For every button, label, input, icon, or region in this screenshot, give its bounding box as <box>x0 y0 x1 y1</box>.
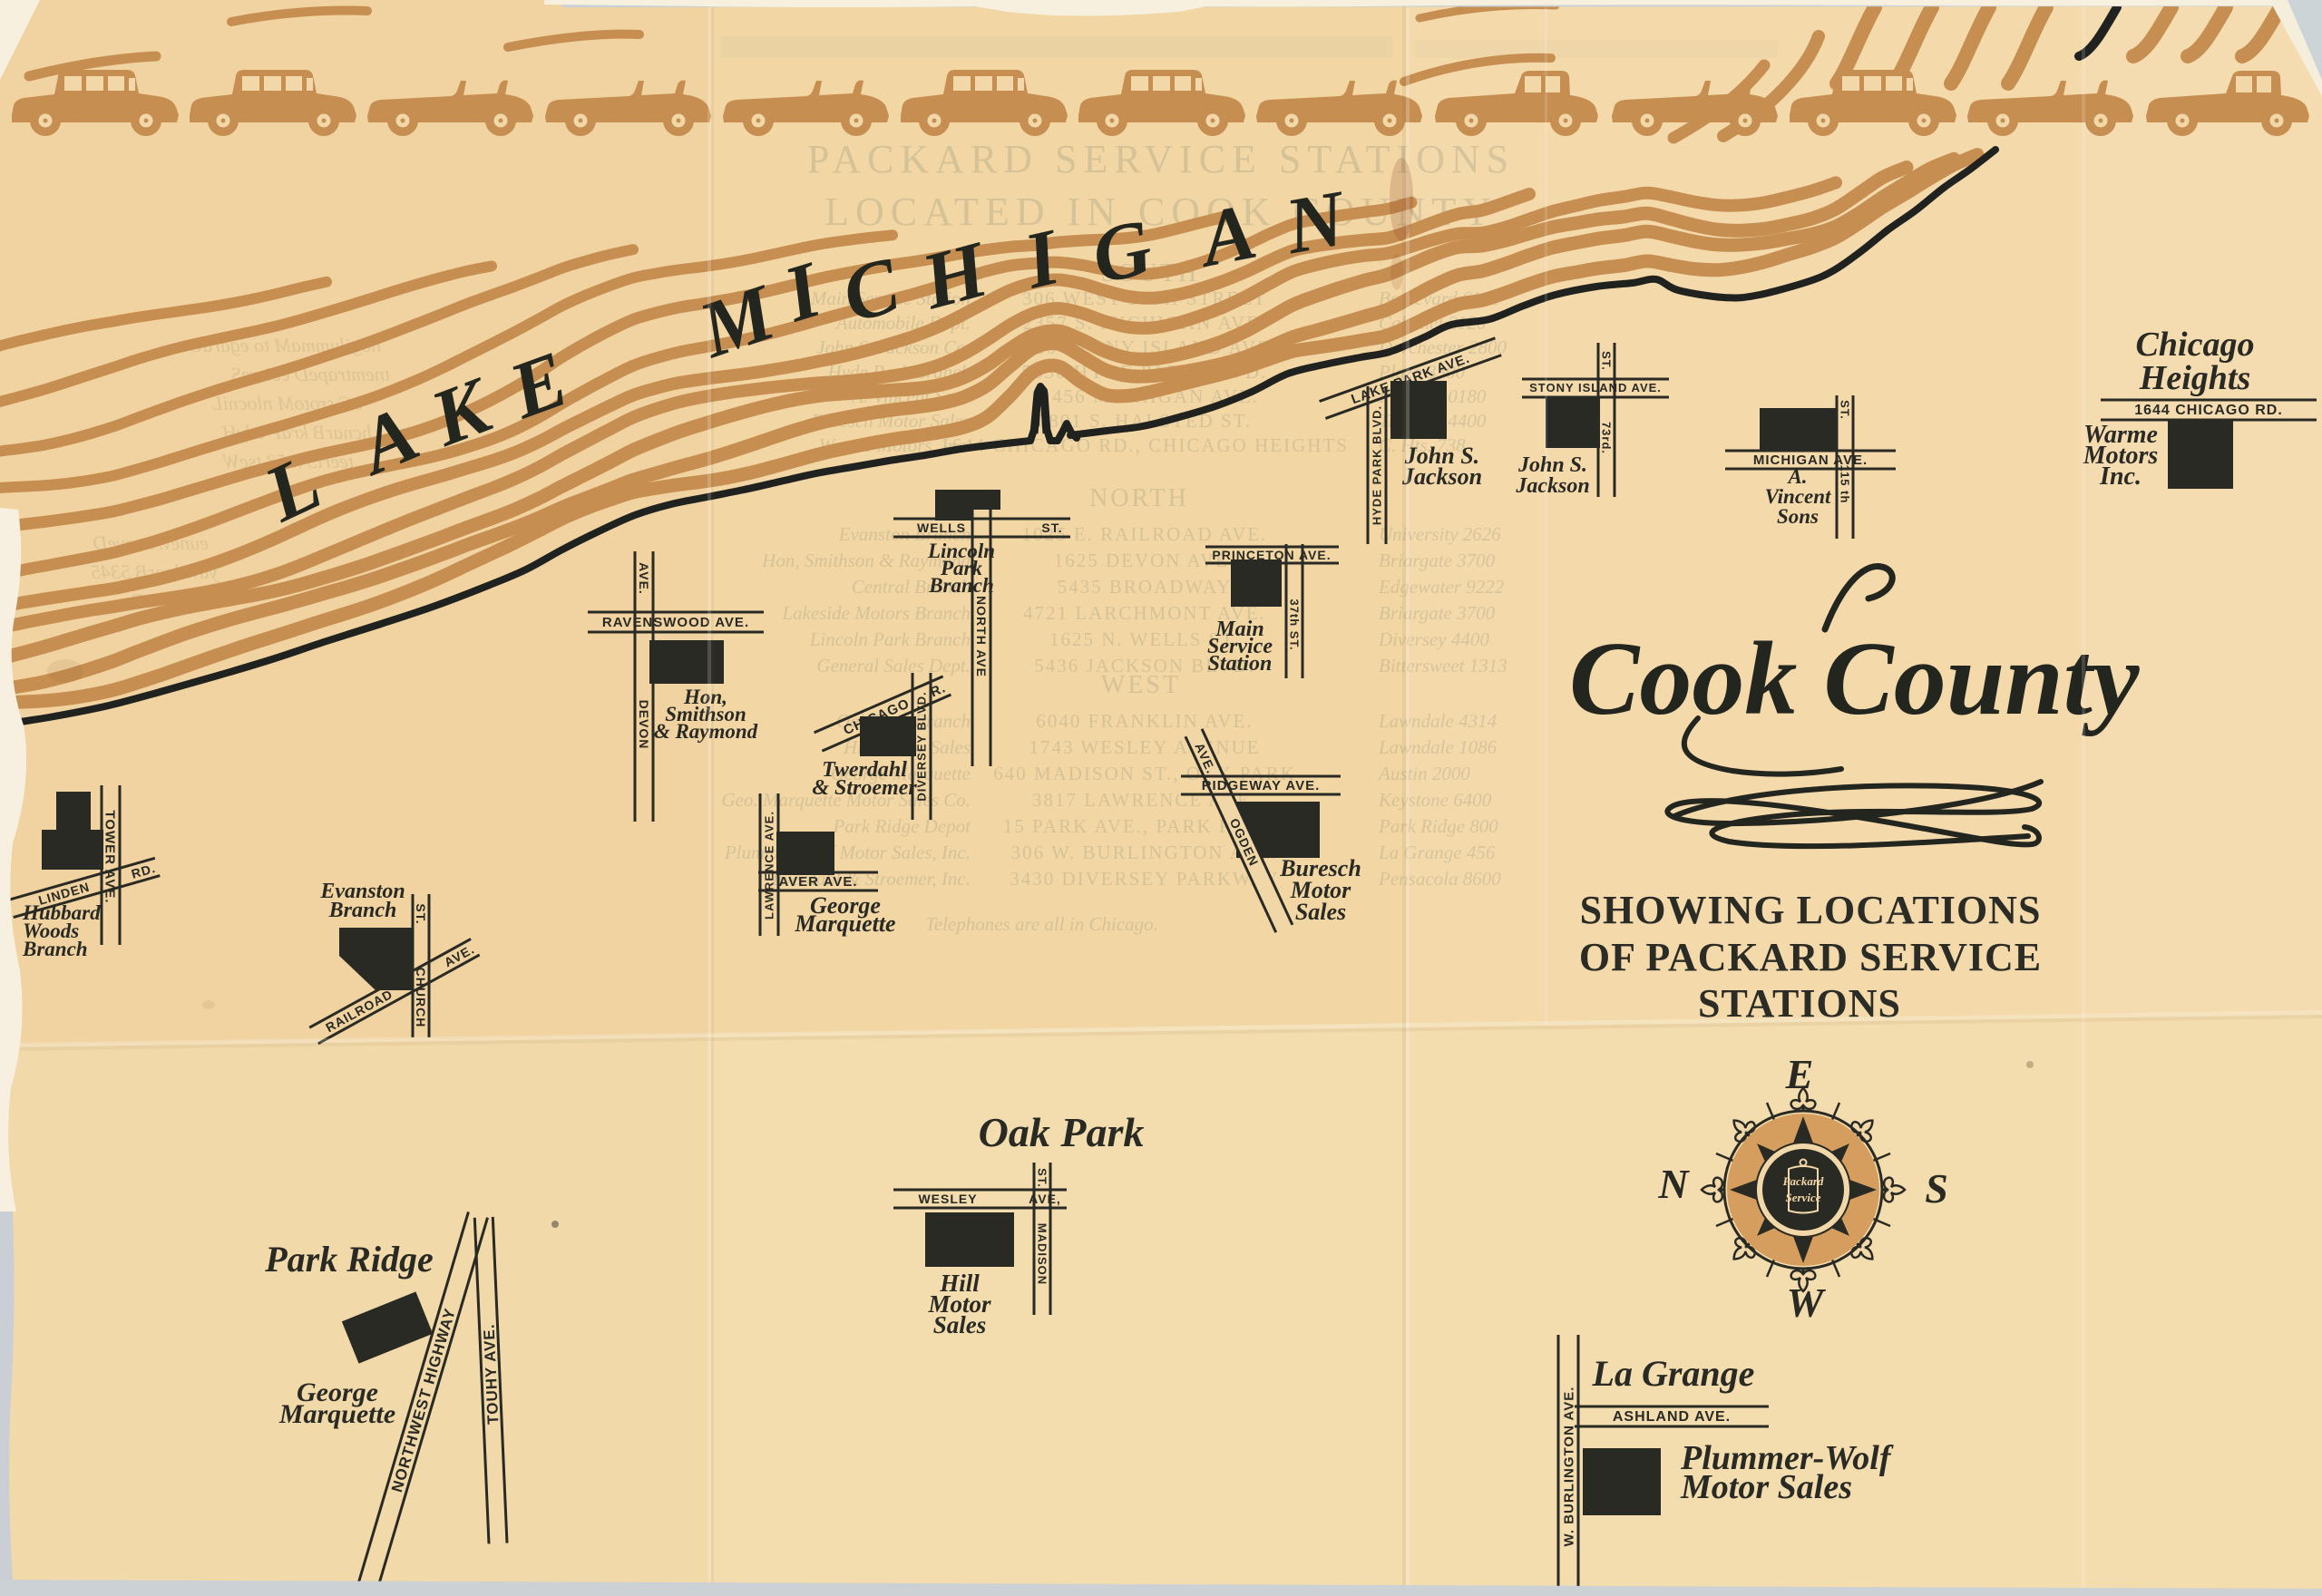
svg-text:CHURCH: CHURCH <box>414 968 428 1028</box>
svg-text:Cook County: Cook County <box>1569 621 2140 737</box>
svg-text:73rd.: 73rd. <box>1599 422 1613 454</box>
svg-text:Park Ridge Depot: Park Ridge Depot <box>832 815 971 837</box>
svg-text:E: E <box>1785 1051 1814 1097</box>
svg-text:Chicago: Chicago <box>2136 326 2255 364</box>
svg-text:Lincoln Park Branch: Lincoln Park Branch <box>809 628 971 650</box>
svg-text:S: S <box>1925 1165 1948 1212</box>
svg-text:MADISON: MADISON <box>1035 1223 1049 1285</box>
svg-text:Briargate 3700: Briargate 3700 <box>1379 550 1496 571</box>
svg-text:Heights: Heights <box>2139 359 2250 397</box>
svg-text:3430 DIVERSEY PARKWAY: 3430 DIVERSEY PARKWAY <box>1010 868 1280 890</box>
svg-text:Jackson: Jackson <box>1515 474 1589 498</box>
svg-text:Oak Park: Oak Park <box>979 1109 1145 1155</box>
svg-text:DEVON: DEVON <box>637 700 651 750</box>
svg-text:NORTH: NORTH <box>1089 484 1189 512</box>
svg-text:La Grange 456: La Grange 456 <box>1378 842 1496 863</box>
svg-text:Sales: Sales <box>1295 899 1346 925</box>
svg-text:Packard: Packard <box>1783 1174 1824 1188</box>
svg-text:Marquette: Marquette <box>794 910 895 937</box>
svg-text:DIVERSEY BLVD.: DIVERSEY BLVD. <box>915 691 929 801</box>
svg-text:Inc.: Inc. <box>2099 462 2142 491</box>
svg-text:Park Ridge: Park Ridge <box>264 1239 434 1280</box>
svg-text:Briargate 3700: Briargate 3700 <box>1379 602 1496 624</box>
svg-text:NORTH AVE: NORTH AVE <box>974 596 989 677</box>
svg-text:Sales: Sales <box>933 1311 987 1338</box>
svg-text:STONY ISLAND AVE.: STONY ISLAND AVE. <box>1529 381 1662 394</box>
svg-text:W: W <box>1787 1280 1827 1326</box>
svg-text:RAVENSWOOD AVE.: RAVENSWOOD AVE. <box>602 615 749 630</box>
svg-text:OF PACKARD SERVICE: OF PACKARD SERVICE <box>1579 935 2042 979</box>
svg-text:N: N <box>1657 1161 1690 1207</box>
svg-text:5435 BROADWAY: 5435 BROADWAY <box>1058 576 1233 598</box>
svg-text:WESLEY: WESLEY <box>918 1192 977 1206</box>
svg-text:W. BURLINGTON AVE.: W. BURLINGTON AVE. <box>1561 1387 1576 1547</box>
svg-text:WEST: WEST <box>1101 671 1181 699</box>
svg-text:& Raymond: & Raymond <box>654 720 758 743</box>
svg-text:1644 CHICAGO RD.: 1644 CHICAGO RD. <box>2134 403 2283 418</box>
svg-text:Motor Sales: Motor Sales <box>1680 1468 1852 1506</box>
svg-text:HYDE PARK BLVD.: HYDE PARK BLVD. <box>1371 405 1384 525</box>
svg-text:Bittersweet 1313: Bittersweet 1313 <box>1379 655 1507 676</box>
svg-text:& Stroemer: & Stroemer <box>812 776 917 800</box>
svg-text:Telephones are all in Chicago.: Telephones are all in Chicago. <box>925 913 1158 935</box>
svg-text:ST.: ST. <box>1838 400 1851 420</box>
svg-text:Branch: Branch <box>328 899 397 922</box>
svg-text:ST.: ST. <box>414 903 428 924</box>
svg-text:La Grange: La Grange <box>1592 1353 1755 1394</box>
svg-text:1625 DEVON AVE.: 1625 DEVON AVE. <box>1054 550 1236 571</box>
svg-text:Park Ridge 800: Park Ridge 800 <box>1378 815 1498 837</box>
svg-text:WELLS: WELLS <box>917 521 966 535</box>
svg-text:SHOWING LOCATIONS: SHOWING LOCATIONS <box>1580 888 2042 932</box>
svg-text:Lakeside Motors Branch: Lakeside Motors Branch <box>781 602 971 624</box>
svg-text:Jackson: Jackson <box>1401 463 1482 490</box>
svg-text:1743 WESLEY AVENUE: 1743 WESLEY AVENUE <box>1029 736 1261 758</box>
svg-text:115 th: 115 th <box>1838 465 1851 504</box>
svg-text:Branch: Branch <box>22 938 88 960</box>
svg-text:Diversey 4400: Diversey 4400 <box>1378 628 1489 650</box>
svg-text:Pensacola 8600: Pensacola 8600 <box>1378 868 1501 890</box>
svg-text:RIDGEWAY AVE.: RIDGEWAY AVE. <box>1202 778 1321 793</box>
svg-text:37th ST.: 37th ST. <box>1287 598 1301 650</box>
svg-text:AVER AVE.: AVER AVE. <box>778 874 857 890</box>
svg-text:Station: Station <box>1208 652 1273 676</box>
svg-text:Service: Service <box>1786 1191 1821 1204</box>
svg-text:Austin 2000: Austin 2000 <box>1377 763 1470 784</box>
svg-text:LAWRENCE AVE.: LAWRENCE AVE. <box>763 811 776 920</box>
svg-text:ST.: ST. <box>1599 351 1613 371</box>
svg-text:AVE.: AVE. <box>637 562 651 595</box>
svg-text:University 2626: University 2626 <box>1379 523 1501 545</box>
svg-text:PRINCETON AVE.: PRINCETON AVE. <box>1212 548 1331 562</box>
svg-text:General Sales Dept.: General Sales Dept. <box>816 655 971 676</box>
svg-text:Keystone 6400: Keystone 6400 <box>1378 789 1492 811</box>
svg-text:Sons: Sons <box>1777 505 1819 528</box>
svg-text:ST.: ST. <box>1041 521 1062 535</box>
svg-text:Lawndale 1086: Lawndale 1086 <box>1378 736 1498 758</box>
svg-text:6040 FRANKLIN AVE.: 6040 FRANKLIN AVE. <box>1036 710 1253 732</box>
svg-text:Lawndale 4314: Lawndale 4314 <box>1378 710 1498 732</box>
svg-text:ASHLAND AVE.: ASHLAND AVE. <box>1613 1409 1731 1425</box>
svg-text:ST.: ST. <box>1035 1168 1049 1188</box>
svg-text:TOWER AVE.: TOWER AVE. <box>102 810 118 903</box>
svg-text:Marquette: Marquette <box>278 1399 395 1429</box>
svg-text:Branch: Branch <box>928 574 994 597</box>
svg-text:Edgewater 9222: Edgewater 9222 <box>1378 576 1505 598</box>
